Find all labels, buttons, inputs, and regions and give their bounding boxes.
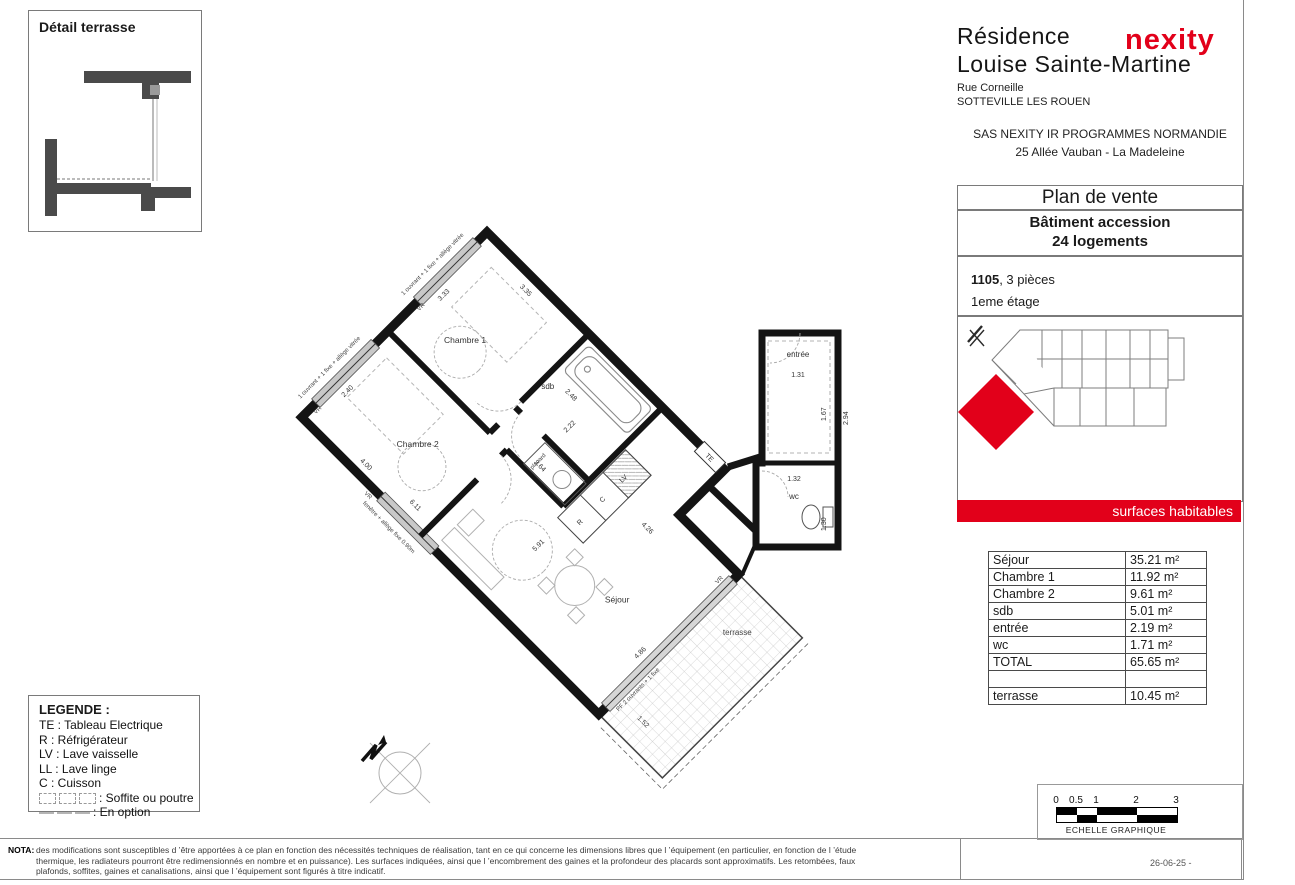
surface-value: 5.01 m² <box>1126 603 1207 620</box>
table-row <box>989 671 1207 688</box>
surface-value: 2.19 m² <box>1126 620 1207 637</box>
sheet-right-rule <box>1243 0 1244 880</box>
footer-divider-2 <box>1241 838 1242 879</box>
plan-de-vente-sheet: Détail terrasse nexity Résidence Louise … <box>0 0 1295 885</box>
scale-tick: 2 <box>1133 795 1139 806</box>
surface-label: terrasse <box>989 688 1126 705</box>
graphic-scale: 0 0.5 1 2 3 ECHELLE GRAPHIQUE <box>1048 795 1188 835</box>
option-glyph <box>57 812 72 814</box>
nota-line3: plafonds, soffites, gaines et canalisati… <box>36 866 956 877</box>
legend-item-r: R : Réfrigérateur <box>39 733 199 748</box>
nota-label: NOTA: <box>8 845 34 856</box>
unit-info-box: 1105, 3 pièces 1eme étage <box>957 255 1243 317</box>
room-label-sdb: sdb <box>541 382 554 391</box>
table-row: entrée2.19 m² <box>989 620 1207 637</box>
surface-label: Séjour <box>989 552 1126 569</box>
table-row: Séjour35.21 m² <box>989 552 1207 569</box>
city: SOTTEVILLE LES ROUEN <box>957 95 1243 109</box>
detail-terrasse-box: Détail terrasse <box>28 10 202 232</box>
legend-item-lv: LV : Lave vaisselle <box>39 747 199 762</box>
surface-label: sdb <box>989 603 1126 620</box>
company-address: 25 Allée Vauban - La Madeleine <box>957 143 1243 161</box>
table-row: sdb5.01 m² <box>989 603 1207 620</box>
dim-entree-v2: 2.94 <box>843 411 850 425</box>
nota-line2: thermique, les radiateurs pourront être … <box>36 856 956 867</box>
scale-bar-graphic <box>1056 807 1178 823</box>
building-line2: 24 logements <box>958 232 1242 251</box>
entrance-wing: TE entrée 1.31 1.67 2.94 wc 1.32 1.30 <box>694 333 850 575</box>
surface-label: entrée <box>989 620 1126 637</box>
table-row: Chambre 29.61 m² <box>989 586 1207 603</box>
scale-tick: 3 <box>1173 795 1179 806</box>
building-line1: Bâtiment accession <box>958 213 1242 232</box>
surface-value: 10.45 m² <box>1126 688 1207 705</box>
soffite-glyph <box>79 793 96 804</box>
plan-de-vente-title-box: Plan de vente <box>957 185 1243 211</box>
unit-floor: 1eme étage <box>971 294 1040 309</box>
footer-bottom-rule <box>0 879 1243 880</box>
unit-type: , 3 pièces <box>999 272 1055 287</box>
surface-label: Chambre 1 <box>989 569 1126 586</box>
north-arrow-icon <box>362 735 430 803</box>
plan-date: 26-06-25 - <box>1150 858 1192 868</box>
surface-label <box>989 671 1126 688</box>
room-label-chambre2: Chambre 2 <box>397 439 439 449</box>
dim-wc-v: 1.30 <box>821 517 828 531</box>
legend-soffite-label: : Soffite ou poutre <box>99 791 194 805</box>
scale-tick: 0.5 <box>1069 795 1083 806</box>
nota-block: NOTA: des modifications sont susceptible… <box>8 845 956 877</box>
legend-item-te: TE : Tableau Electrique <box>39 718 199 733</box>
key-plan-north-icon <box>968 326 984 346</box>
table-row: wc1.71 m² <box>989 637 1207 654</box>
floor-plan: terrasse 1.52 <box>280 215 880 805</box>
surfaces-table: Séjour35.21 m² Chambre 111.92 m² Chambre… <box>988 551 1207 705</box>
surface-label: wc <box>989 637 1126 654</box>
scale-tick: 0 <box>1053 795 1059 806</box>
dim-entree-v: 1.67 <box>821 407 828 421</box>
surface-value: 1.71 m² <box>1126 637 1207 654</box>
scale-label: ECHELLE GRAPHIQUE <box>1048 825 1184 835</box>
legend-option-label: : En option <box>93 805 150 819</box>
toilet-icon <box>802 505 833 529</box>
company: SAS NEXITY IR PROGRAMMES NORMANDIE <box>957 125 1243 143</box>
soffite-glyph <box>39 793 56 804</box>
key-plan-thumbnail <box>958 316 1240 499</box>
footer-divider <box>960 838 961 879</box>
header: nexity Résidence Louise Sainte-Martine R… <box>957 22 1243 161</box>
option-glyph <box>39 812 54 814</box>
legend-item-c: C : Cuisson <box>39 776 199 791</box>
room-label-entree: entrée <box>787 350 810 359</box>
building-box: Bâtiment accession 24 logements <box>957 209 1243 257</box>
surface-value <box>1126 671 1207 688</box>
table-row: Chambre 111.92 m² <box>989 569 1207 586</box>
legend-item-ll: LL : Lave linge <box>39 762 199 777</box>
surface-value: 35.21 m² <box>1126 552 1207 569</box>
soffite-glyph <box>59 793 76 804</box>
dim-entree-h: 1.31 <box>791 372 805 379</box>
surface-value: 9.61 m² <box>1126 586 1207 603</box>
nexity-logo: nexity <box>1125 24 1215 57</box>
plan-de-vente-title: Plan de vente <box>958 186 1242 210</box>
surface-label: TOTAL <box>989 654 1126 671</box>
street: Rue Corneille <box>957 81 1243 95</box>
table-row: TOTAL65.65 m² <box>989 654 1207 671</box>
key-plan-box <box>957 315 1243 502</box>
legend-box: LEGENDE : TE : Tableau Electrique R : Ré… <box>28 695 200 812</box>
room-label-terrasse: terrasse <box>723 628 752 637</box>
room-label-sejour: Séjour <box>605 595 630 605</box>
option-glyph <box>75 812 90 814</box>
scale-tick: 1 <box>1093 795 1099 806</box>
unit-number: 1105 <box>971 272 999 287</box>
surface-label: Chambre 2 <box>989 586 1126 603</box>
room-label-chambre1: Chambre 1 <box>444 335 486 345</box>
terrace-section-drawing <box>29 11 201 231</box>
nota-line1: des modifications sont susceptibles d ’ê… <box>36 845 956 856</box>
table-row: terrasse10.45 m² <box>989 688 1207 705</box>
room-label-wc: wc <box>788 492 799 501</box>
dim-wc-h: 1.32 <box>787 476 801 483</box>
surface-value: 11.92 m² <box>1126 569 1207 586</box>
surface-value: 65.65 m² <box>1126 654 1207 671</box>
legend-title: LEGENDE : <box>39 702 199 718</box>
surfaces-habitables-bar: surfaces habitables <box>957 500 1241 522</box>
